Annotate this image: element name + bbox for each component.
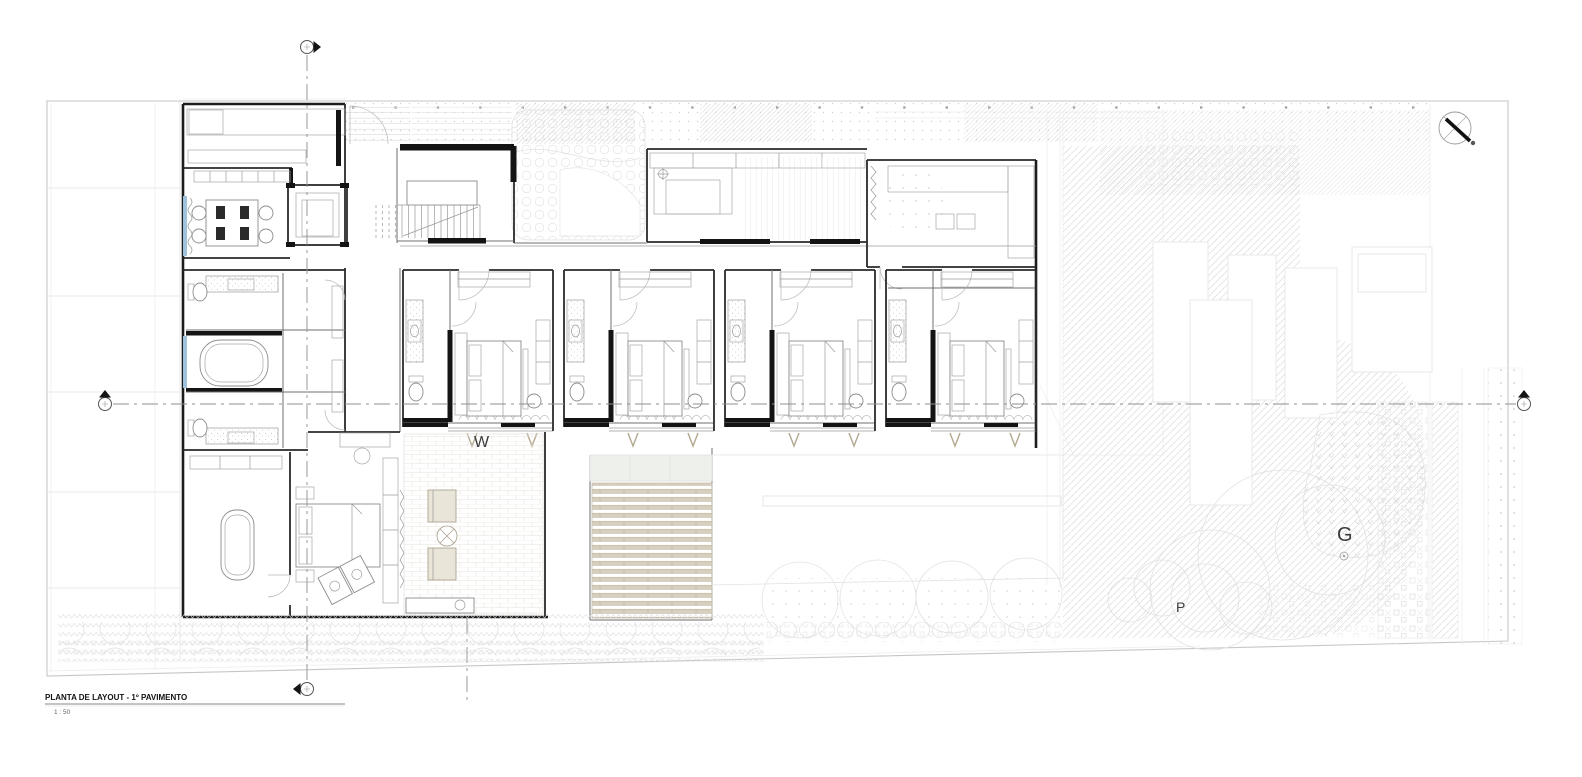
closet-accordion xyxy=(871,166,876,220)
freestanding-tub-icon xyxy=(221,510,254,580)
bedroom-suite-1 xyxy=(403,270,553,446)
office-room xyxy=(183,171,290,258)
staircase xyxy=(376,144,517,244)
chair-icon xyxy=(240,206,249,219)
section-cut-icon xyxy=(301,41,322,54)
stair-treads xyxy=(397,205,480,238)
section-cut-icon xyxy=(293,683,314,696)
chair-icon xyxy=(216,206,225,219)
toilet-icon xyxy=(193,419,207,437)
title-block: PLANTA DE LAYOUT - 1º PAVIMENTO 1 : 50 xyxy=(45,693,345,716)
window-glass xyxy=(183,336,187,388)
toilet-icon xyxy=(193,283,207,301)
paving-label: P xyxy=(1176,599,1185,615)
bathtub-icon xyxy=(200,340,268,386)
bed-icon xyxy=(296,504,380,567)
compass-icon xyxy=(1439,112,1475,145)
driveway-strip xyxy=(47,101,180,670)
timber-deck xyxy=(590,448,712,620)
stair-treads-dashed xyxy=(376,205,396,238)
desk xyxy=(340,433,390,447)
bedroom-suite-4 xyxy=(886,270,1036,446)
drawing-title: PLANTA DE LAYOUT - 1º PAVIMENTO xyxy=(45,693,187,702)
chair-icon xyxy=(216,227,225,240)
section-cut-icon xyxy=(99,390,112,411)
rug xyxy=(879,169,945,235)
sofa-seat xyxy=(957,214,975,229)
bedroom-suite-2 xyxy=(564,270,714,446)
elevator xyxy=(286,183,349,247)
bedroom-suite-3 xyxy=(725,270,875,446)
floor-plan-drawing: W G P xyxy=(0,0,1582,777)
chair-icon xyxy=(240,227,249,240)
dining-table xyxy=(206,200,258,246)
drawing-scale: 1 : 50 xyxy=(54,709,71,716)
right-garden: G P xyxy=(1063,146,1522,650)
curtain-line xyxy=(400,490,404,588)
armchair-icon xyxy=(428,548,456,580)
master-suite xyxy=(190,432,400,617)
floor-plan-sheet: W G P xyxy=(0,0,1582,777)
stair-landing xyxy=(407,181,477,205)
deck-slats xyxy=(592,483,712,618)
garden-label: G xyxy=(1337,524,1353,546)
bottom-planting xyxy=(58,558,1062,662)
courtyard-garden xyxy=(512,110,645,240)
bedroom-suites xyxy=(403,270,1036,446)
patio: W xyxy=(400,432,545,617)
bathrooms-block xyxy=(183,270,345,450)
winter-garden-label: W xyxy=(474,434,490,451)
window-glass xyxy=(183,196,187,256)
north-arrow xyxy=(1446,119,1470,141)
armchair-icon xyxy=(428,490,456,522)
